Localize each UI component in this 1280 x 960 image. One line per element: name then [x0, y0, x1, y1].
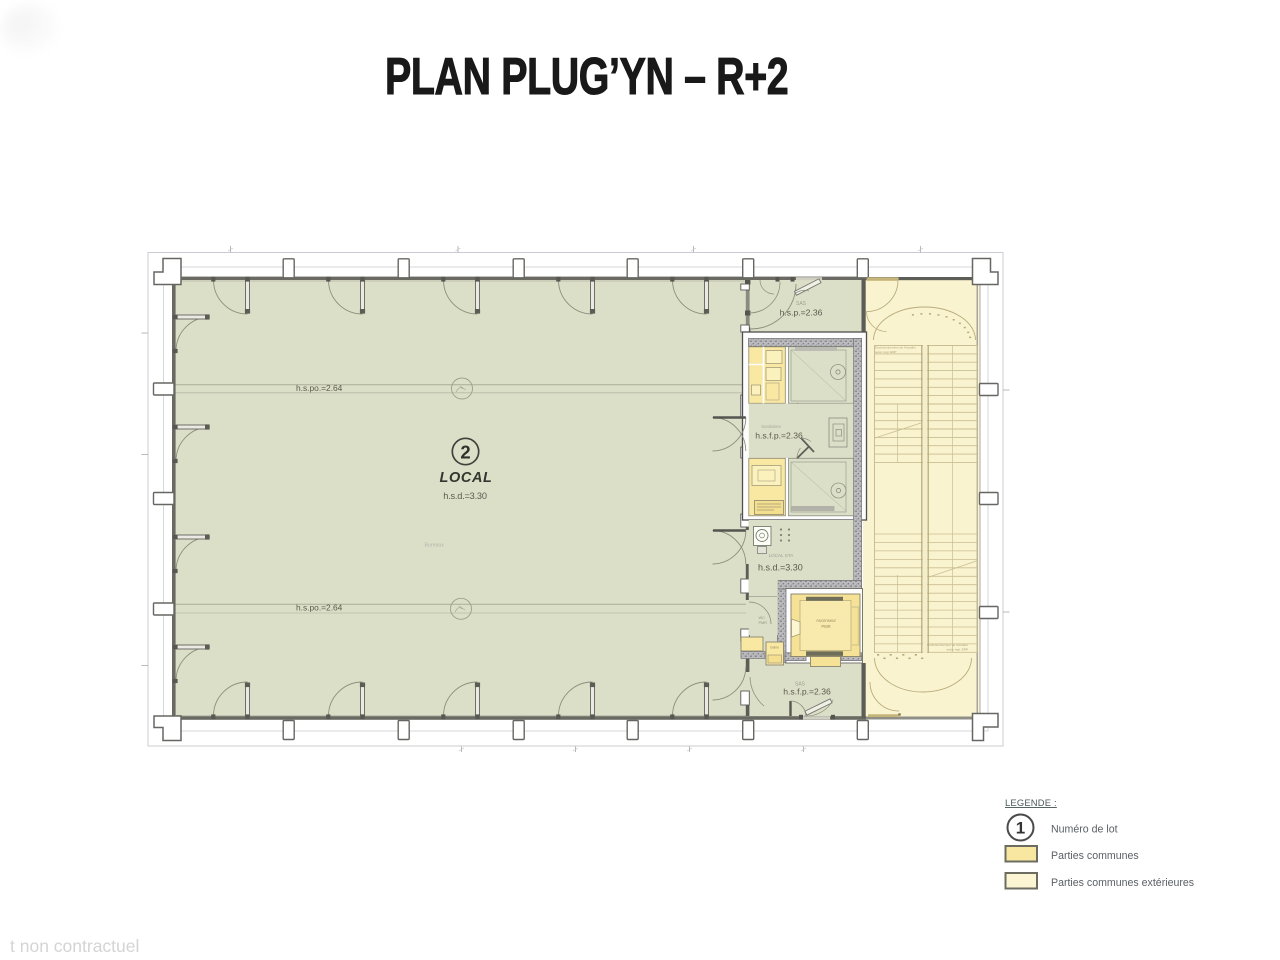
svg-text:h.s.d.=3.30: h.s.d.=3.30	[758, 563, 803, 573]
svg-text:LOCAL STA: LOCAL STA	[769, 553, 795, 558]
svg-text:h.s.po.=2.64: h.s.po.=2.64	[296, 383, 343, 393]
svg-text:selon régl. ERP: selon régl. ERP	[875, 350, 897, 354]
svg-text:WC: WC	[759, 616, 766, 620]
svg-text:h.s.f.p.=2.36: h.s.f.p.=2.36	[755, 431, 803, 441]
svg-text:Encloisonnement de l'escalier: Encloisonnement de l'escalier	[875, 346, 916, 350]
svg-text:h.s.po.=2.64: h.s.po.=2.64	[296, 602, 343, 612]
svg-text:PMR: PMR	[759, 621, 768, 625]
svg-text:LEGENDE :: LEGENDE :	[1005, 797, 1057, 808]
svg-text:Numéro de lot: Numéro de lot	[1051, 824, 1118, 836]
svg-text:Parties communes: Parties communes	[1051, 850, 1139, 862]
svg-text:Ascenseur: Ascenseur	[816, 618, 836, 623]
svg-text:Sanitaires: Sanitaires	[761, 424, 781, 429]
svg-text:Bureaux: Bureaux	[425, 543, 445, 549]
svg-text:Gaine: Gaine	[770, 646, 779, 650]
svg-text:selon régl. ERP: selon régl. ERP	[947, 648, 969, 652]
svg-text:SAS: SAS	[796, 301, 807, 307]
svg-text:Parties communes extérieures: Parties communes extérieures	[1051, 877, 1194, 889]
svg-text:h.s.f.p.=2.36: h.s.f.p.=2.36	[783, 687, 831, 697]
svg-text:h.s.d.=3.30: h.s.d.=3.30	[443, 491, 487, 501]
svg-text:h.s.p.=2.36: h.s.p.=2.36	[780, 308, 823, 318]
svg-text:PMR: PMR	[821, 624, 830, 629]
svg-text:LOCAL: LOCAL	[440, 470, 493, 486]
svg-text:2: 2	[460, 441, 470, 462]
svg-text:1: 1	[1016, 819, 1025, 838]
svg-text:Encloisonnement de l'escalier: Encloisonnement de l'escalier	[927, 643, 968, 647]
